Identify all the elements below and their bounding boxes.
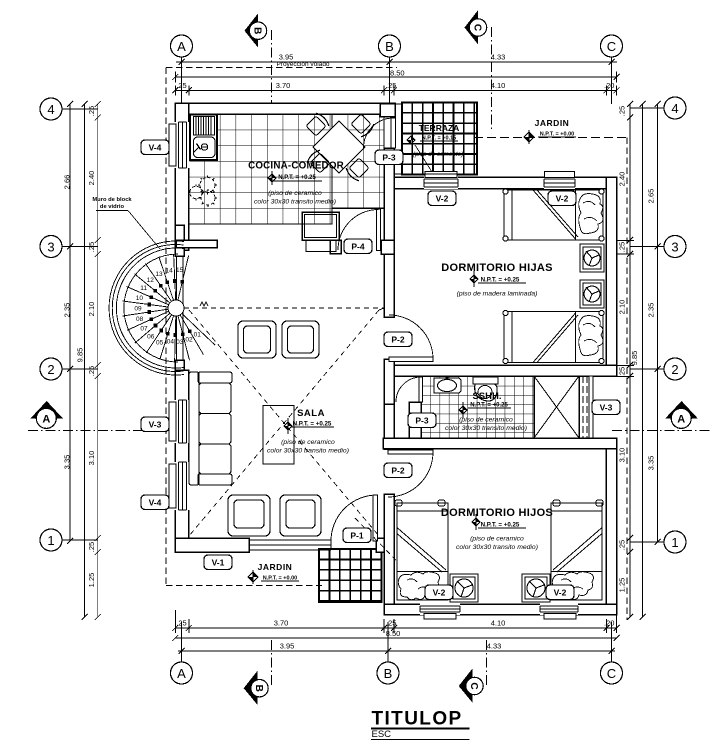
svg-text:P-4: P-4 [351, 242, 365, 252]
svg-text:4.10: 4.10 [491, 619, 506, 628]
svg-text:08: 08 [136, 316, 144, 323]
svg-text:06: 06 [147, 334, 155, 341]
svg-text:(piso de ceramico: (piso de ceramico [459, 417, 513, 424]
svg-text:2.40: 2.40 [618, 172, 627, 187]
svg-text:V-4: V-4 [149, 143, 162, 153]
svg-text:1.25: 1.25 [618, 578, 627, 593]
svg-text:2.40: 2.40 [87, 171, 96, 186]
svg-text:A: A [42, 414, 50, 426]
svg-text:3.70: 3.70 [276, 81, 291, 90]
svg-text:P-3: P-3 [382, 153, 396, 163]
svg-text:3.95: 3.95 [280, 642, 295, 651]
svg-text:2.10: 2.10 [87, 302, 96, 317]
svg-text:.25: .25 [176, 619, 186, 628]
svg-text:.25: .25 [386, 81, 396, 90]
svg-text:A: A [177, 39, 186, 54]
svg-text:02: 02 [185, 336, 193, 343]
svg-text:2.35: 2.35 [63, 303, 72, 318]
svg-text:.25: .25 [87, 242, 96, 252]
svg-text:4.10: 4.10 [491, 81, 506, 90]
svg-text:B: B [385, 39, 394, 54]
svg-text:V-3: V-3 [600, 403, 613, 413]
svg-text:N.P.T. = +0.00: N.P.T. = +0.00 [263, 576, 297, 582]
svg-text:2: 2 [47, 362, 54, 377]
svg-text:V-3: V-3 [149, 420, 162, 430]
svg-text:Muro de block: Muro de block [92, 197, 132, 203]
svg-text:4: 4 [47, 102, 54, 117]
svg-text:3.70: 3.70 [274, 619, 289, 628]
svg-text:N.P.T. = +0.25: N.P.T. = +0.25 [278, 175, 316, 181]
svg-text:B: B [252, 27, 263, 34]
svg-text:N.P.T. = +0.25: N.P.T. = +0.25 [293, 421, 332, 428]
svg-text:01: 01 [194, 332, 202, 339]
svg-text:color 30x30 transito medio): color 30x30 transito medio) [267, 448, 349, 455]
svg-text:V-1: V-1 [212, 558, 225, 568]
svg-text:03: 03 [176, 339, 184, 346]
svg-text:A: A [177, 666, 186, 681]
svg-text:04: 04 [167, 339, 175, 346]
svg-text:11: 11 [140, 285, 147, 292]
svg-text:Proyeccion volado: Proyeccion volado [276, 61, 329, 68]
svg-text:15: 15 [176, 267, 184, 274]
svg-text:P-2: P-2 [391, 335, 405, 345]
svg-text:V-2: V-2 [554, 588, 567, 598]
svg-text:13: 13 [155, 271, 163, 278]
svg-text:SALA: SALA [297, 408, 325, 419]
svg-text:V-2: V-2 [436, 194, 449, 204]
svg-text:3.10: 3.10 [618, 448, 627, 463]
svg-text:3.35: 3.35 [647, 456, 656, 471]
svg-text:2.35: 2.35 [647, 303, 656, 318]
svg-text:3: 3 [671, 240, 678, 255]
svg-text:N.P.T. = +0.25: N.P.T. = +0.25 [481, 277, 520, 284]
svg-text:2.65: 2.65 [647, 189, 656, 204]
svg-text:2: 2 [671, 362, 678, 377]
svg-text:V-2: V-2 [556, 194, 569, 204]
svg-text:TERRAZA: TERRAZA [419, 123, 460, 133]
svg-text:color 30x30 transito medio): color 30x30 transito medio) [445, 425, 527, 432]
svg-text:.20: .20 [604, 81, 614, 90]
svg-text:.25: .25 [87, 366, 96, 376]
svg-text:8.50: 8.50 [386, 629, 401, 638]
svg-text:DORMITORIO HIJAS: DORMITORIO HIJAS [441, 262, 553, 274]
svg-text:color 30x30 transito medio): color 30x30 transito medio) [254, 199, 336, 206]
svg-text:C: C [468, 682, 479, 689]
svg-text:A: A [677, 414, 685, 426]
svg-text:(piso de ceramico: (piso de ceramico [268, 190, 322, 197]
svg-text:COCINA-COMEDOR: COCINA-COMEDOR [248, 161, 344, 172]
svg-text:.25: .25 [87, 106, 96, 116]
svg-text:(piso de ceramico: (piso de ceramico [470, 536, 524, 543]
svg-text:N.P.T. = +0.15: N.P.T. = +0.15 [422, 136, 456, 142]
svg-text:N.P.T. = +0.00: N.P.T. = +0.00 [540, 132, 574, 138]
svg-text:10: 10 [136, 295, 144, 302]
svg-text:.25: .25 [386, 619, 396, 628]
svg-text:09: 09 [134, 305, 142, 312]
svg-text:C: C [472, 24, 483, 31]
svg-text:P-1: P-1 [350, 531, 364, 541]
svg-text:14: 14 [165, 268, 173, 275]
svg-text:9.85: 9.85 [630, 351, 639, 366]
svg-text:C: C [607, 39, 616, 54]
svg-text:2.66: 2.66 [63, 175, 72, 190]
svg-text:.20: .20 [604, 619, 614, 628]
svg-text:3: 3 [47, 240, 54, 255]
svg-text:de vidrio: de vidrio [100, 204, 125, 210]
svg-text:B: B [253, 685, 264, 692]
svg-text:C: C [607, 666, 616, 681]
svg-text:.25: .25 [618, 540, 627, 550]
svg-text:color 30x30 transito medio): color 30x30 transito medio) [456, 544, 538, 551]
svg-text:V-4: V-4 [149, 498, 162, 508]
svg-text:JARDIN: JARDIN [535, 118, 570, 128]
svg-text:DORMITORIO HIJOS: DORMITORIO HIJOS [441, 507, 553, 519]
svg-text:(piso de ceramico: (piso de ceramico [281, 439, 335, 446]
svg-text:ESC: ESC [372, 729, 392, 740]
svg-text:V-2: V-2 [433, 588, 446, 598]
svg-text:9.85: 9.85 [76, 348, 85, 363]
svg-text:4.33: 4.33 [491, 53, 506, 62]
svg-text:.25: .25 [618, 106, 627, 116]
svg-text:12: 12 [147, 277, 155, 284]
svg-text:1: 1 [671, 535, 678, 550]
svg-text:05: 05 [156, 339, 164, 346]
svg-text:07: 07 [140, 325, 148, 332]
svg-text:P-2: P-2 [391, 466, 405, 476]
svg-text:4: 4 [671, 101, 678, 116]
svg-text:SSHH.: SSHH. [472, 391, 501, 402]
svg-text:(piso de cemento): (piso de cemento) [413, 151, 463, 158]
svg-text:.25: .25 [87, 542, 96, 552]
svg-text:2.10: 2.10 [618, 300, 627, 315]
svg-text:P-3: P-3 [415, 416, 429, 426]
svg-text:1.25: 1.25 [87, 573, 96, 588]
svg-text:.25: .25 [618, 242, 627, 252]
svg-text:JARDIN: JARDIN [258, 562, 293, 572]
svg-text:3.10: 3.10 [87, 451, 96, 466]
svg-text:.25: .25 [176, 81, 186, 90]
svg-text:TITULOP: TITULOP [372, 709, 463, 730]
svg-text:4.33: 4.33 [487, 642, 502, 651]
svg-text:(piso de madera laminada): (piso de madera laminada) [457, 291, 538, 298]
svg-text:B: B [384, 666, 393, 681]
svg-text:N.P.T. = +0.25: N.P.T. = +0.25 [481, 522, 520, 529]
svg-text:.25: .25 [618, 367, 627, 377]
svg-text:3.35: 3.35 [63, 455, 72, 470]
svg-text:8.50: 8.50 [390, 69, 405, 78]
svg-text:1: 1 [47, 533, 54, 548]
